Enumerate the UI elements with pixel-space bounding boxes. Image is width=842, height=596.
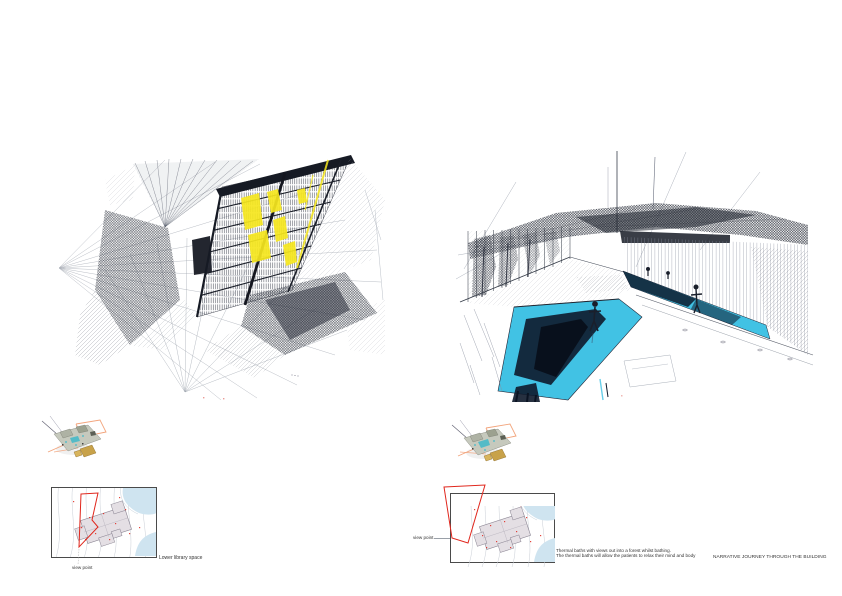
pool-deck-drains	[683, 329, 793, 360]
site-model-thumbnail-right	[448, 412, 520, 468]
caption-line-2: The thermal baths will allow the patient…	[556, 553, 695, 558]
thermal-baths-drawing	[456, 147, 816, 402]
library-sketch-drawing	[45, 150, 385, 400]
thermal-baths-caption: Thermal baths with views out into a fore…	[556, 548, 695, 558]
key-plan-right	[438, 481, 558, 567]
left-pool	[498, 299, 642, 402]
library-sketch-figure	[45, 150, 385, 400]
view-point-label-left: view point	[72, 565, 92, 570]
board-title: NARRATIVE JOURNEY THROUGH THE BUILDING	[713, 555, 827, 560]
site-model-thumbnail-left	[38, 408, 110, 464]
plan-caption-left: Lower library space	[159, 556, 202, 561]
thermal-baths-sketch-figure	[456, 147, 816, 402]
presentation-sheet: view point Lower library space	[0, 0, 842, 596]
key-plan-left	[51, 487, 157, 569]
view-point-label-right: view point	[413, 535, 433, 540]
